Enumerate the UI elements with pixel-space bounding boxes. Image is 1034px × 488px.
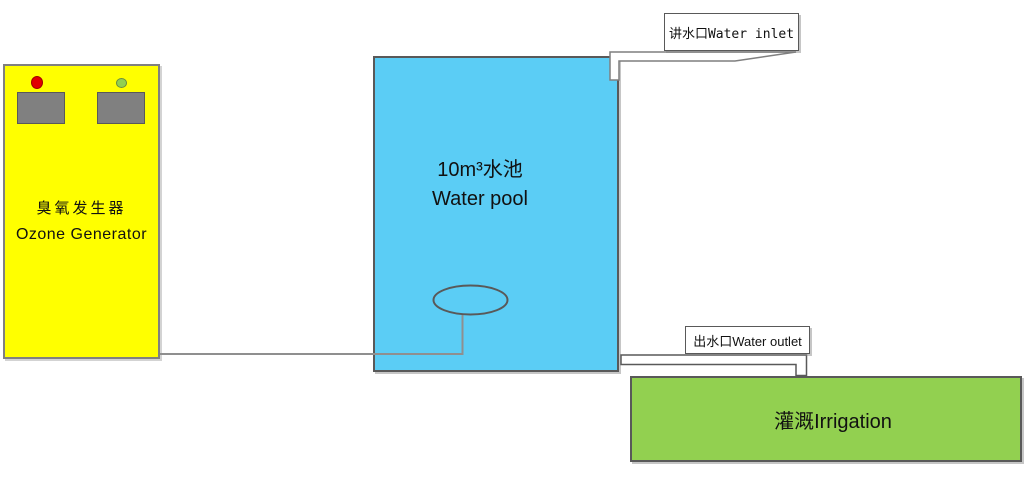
diagram-canvas: 灌溉Irrigation 10m³水池 Water pool 臭氧发生器 Ozo… (0, 0, 1034, 488)
water-outlet-pipe (621, 355, 807, 376)
water-outlet-callout: 出水口Water outlet (685, 326, 810, 354)
water-outlet-label: 出水口Water outlet (693, 331, 802, 350)
water-inlet-pipe (610, 52, 796, 80)
pipe-layer (0, 0, 1034, 488)
water-inlet-callout: 讲水口Water inlet (664, 13, 799, 51)
ozone-to-pool-pipe (160, 314, 463, 354)
water-inlet-label: 讲水口Water inlet (669, 23, 794, 42)
diffuser-ellipse (434, 286, 508, 315)
